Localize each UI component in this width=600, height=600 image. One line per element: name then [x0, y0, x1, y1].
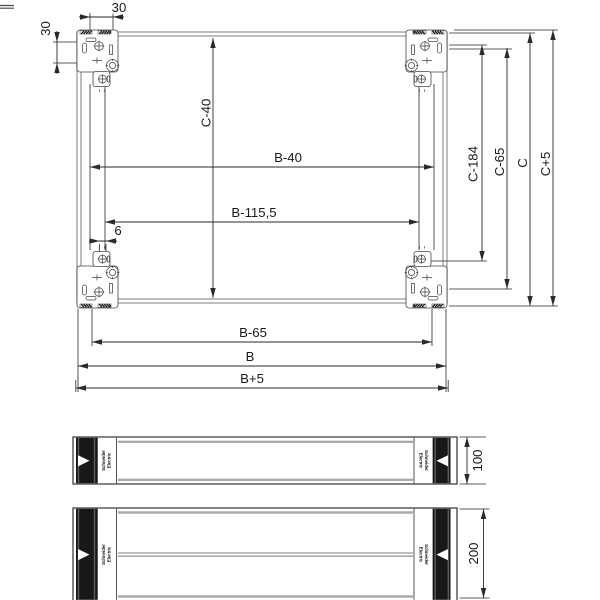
dim-label-height-200: 200: [466, 542, 481, 564]
arrowhead-icon: [481, 509, 486, 519]
dimension-b-plus5: B+5: [76, 371, 448, 391]
arrowhead-icon: [481, 588, 486, 598]
dim-label-height-100: 100: [470, 449, 485, 471]
arrowhead-icon: [78, 363, 88, 368]
dimension-c: C: [515, 33, 533, 306]
top-view: 30 30 C-40 B-40 B-115,5: [38, 0, 558, 392]
dim-label-top-offset: 30: [112, 0, 127, 15]
technical-drawing-page: 30 30 C-40 B-40 B-115,5: [0, 0, 600, 600]
arrowhead-icon: [80, 14, 90, 19]
arrowhead-icon: [113, 14, 123, 19]
arrowhead-icon: [106, 238, 116, 243]
dimension-b40: B-40: [90, 150, 434, 170]
arrowhead-icon: [54, 32, 59, 42]
arrowhead-icon: [436, 363, 446, 368]
dimension-c184: C-184: [466, 45, 485, 261]
dimension-height-200: 200: [460, 509, 490, 598]
brand-label-left: Schneider Electric: [101, 450, 111, 471]
crop-mark: [0, 6, 14, 9]
dimension-b: B: [78, 349, 446, 369]
arrowhead-icon: [92, 339, 102, 344]
dim-label-left-offset: 30: [38, 21, 53, 36]
arrowhead-icon: [550, 296, 555, 306]
frame-outer-edge: [77, 32, 447, 303]
dimension-b1155: B-115,5: [105, 205, 419, 225]
arrowhead-icon: [504, 279, 509, 289]
corner-bracket-bottom-right: [405, 246, 447, 308]
arrowhead-icon: [527, 296, 532, 306]
dimension-c-plus5: C+5: [538, 30, 556, 306]
brand-label-right: Schneider Electric: [419, 450, 429, 471]
brand-line2: Electric: [106, 546, 111, 562]
arrowhead-icon: [550, 30, 555, 40]
dimension-top-offset: 30: [79, 0, 126, 20]
arrowhead-icon: [479, 45, 484, 55]
arrowhead-icon: [424, 164, 434, 169]
plinth-200-body: [73, 508, 457, 600]
dimension-left-offset: 30: [38, 21, 60, 74]
brand-label-right: Schneider Electric: [419, 544, 429, 565]
side-view-plinth-200: Schneider Electric Schneider Electric 20…: [73, 508, 490, 600]
brand-line2: Electric: [106, 452, 111, 468]
corner-bracket-top-right: [405, 30, 447, 92]
dimension-c40: C-40: [199, 38, 216, 298]
frame-inner-edge: [81, 36, 443, 299]
brand-line2: Electric: [419, 547, 424, 563]
arrowhead-icon: [76, 385, 86, 390]
arrowhead-icon: [464, 474, 469, 484]
arrowhead-icon: [210, 38, 215, 48]
corner-bracket-top-left: [77, 30, 119, 92]
dim-label-c-plus5: C+5: [538, 152, 553, 177]
dimension-c65: C-65: [492, 48, 510, 289]
arrowhead-icon: [90, 238, 100, 243]
arrowhead-icon: [438, 385, 448, 390]
arrowhead-icon: [54, 63, 59, 73]
dim-label-c65: C-65: [492, 148, 507, 177]
dimension-b65: B-65: [92, 325, 432, 345]
dim-label-b1155: B-115,5: [231, 205, 276, 220]
dim-label-b: B: [246, 349, 255, 364]
corner-bracket-bottom-left: [77, 246, 119, 308]
arrowhead-icon: [409, 219, 419, 224]
dim-label-b-plus5: B+5: [240, 371, 264, 386]
arrowhead-icon: [504, 48, 509, 58]
plinth-100-body: [73, 437, 457, 484]
plinth-dimension-drawing: 30 30 C-40 B-40 B-115,5: [0, 0, 600, 600]
dimension-height-100: 100: [460, 437, 487, 484]
brand-label-left: Schneider Electric: [101, 544, 111, 565]
arrowhead-icon: [527, 33, 532, 43]
arrowhead-icon: [210, 288, 215, 298]
dim-label-six: 6: [114, 223, 121, 238]
dim-label-c: C: [515, 158, 530, 168]
arrowhead-icon: [479, 251, 484, 261]
arrowhead-icon: [90, 164, 100, 169]
brand-line2: Electric: [419, 453, 424, 469]
side-view-plinth-100: Schneider Electric Schneider Electric 10…: [73, 437, 486, 484]
arrowhead-icon: [464, 437, 469, 447]
dim-label-b40: B-40: [274, 150, 302, 165]
dim-label-c184: C-184: [466, 146, 481, 182]
dim-label-b65: B-65: [239, 325, 267, 340]
dim-label-c40: C-40: [199, 99, 214, 128]
arrowhead-icon: [422, 339, 432, 344]
